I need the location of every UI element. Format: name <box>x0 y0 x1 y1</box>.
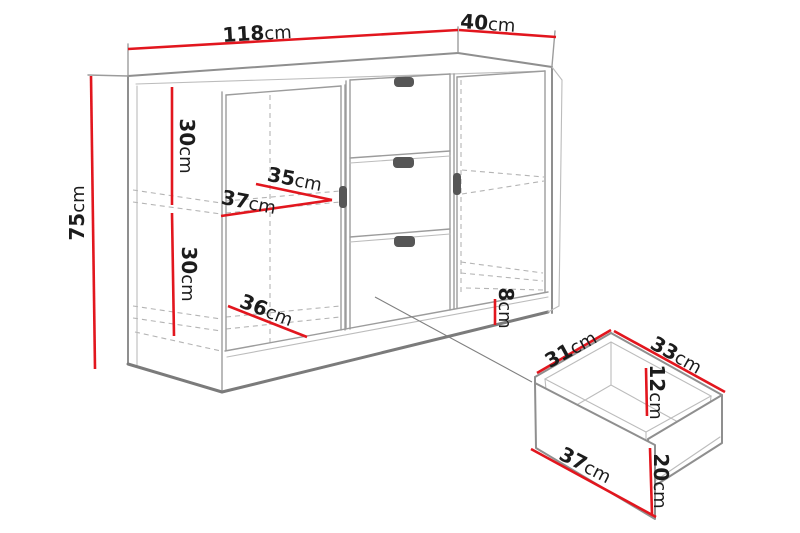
dim-value: 30 <box>175 118 199 146</box>
dim-value: 12 <box>645 364 669 392</box>
dim-unit: cm <box>649 481 670 508</box>
furniture-dimension-diagram: 118cm 40cm 75cm 30cm 30cm 35cm 37cm 36cm… <box>0 0 800 533</box>
dim-unit: cm <box>177 274 198 301</box>
cabinet-drawing <box>88 27 562 392</box>
left-door-handle <box>339 186 347 208</box>
dim-value: 30 <box>177 246 201 274</box>
dim-unit: cm <box>68 185 89 212</box>
dim-value: 75 <box>65 213 89 241</box>
diagram-canvas: 118cm 40cm 75cm 30cm 30cm 35cm 37cm 36cm… <box>0 0 800 533</box>
drawer-handle-2 <box>393 157 414 168</box>
dim-unit: cm <box>487 14 516 37</box>
dim-unit: cm <box>175 146 196 173</box>
dim-unit: cm <box>494 301 515 328</box>
dim-drawer-front-height-label: 20cm <box>649 453 673 508</box>
dim-value: 37 <box>219 185 251 214</box>
dim-cabinet-width-label: 118cm <box>222 19 292 47</box>
dim-drawer-inner-height-label: 12cm <box>645 364 669 419</box>
dim-drawer-side-label: 31cm <box>540 325 600 373</box>
dim-value: 8 <box>494 287 518 301</box>
cabinet-outline <box>88 27 562 392</box>
dim-unit: cm <box>264 22 293 45</box>
right-door-handle <box>453 173 461 195</box>
dim-unit: cm <box>263 302 296 331</box>
drawer-front-panel <box>535 383 655 519</box>
dim-value: 40 <box>460 9 489 35</box>
dim-top-section-label: 30cm <box>175 118 199 173</box>
dim-unit: cm <box>645 392 666 419</box>
dim-cabinet-depth-label: 40cm <box>460 9 517 37</box>
dim-door-width-label: 35cm <box>265 162 324 196</box>
dim-value: 20 <box>649 453 673 481</box>
dim-unit: cm <box>247 193 278 219</box>
dim-cabinet-height-label: 75cm <box>65 185 89 240</box>
dim-value: 118 <box>222 21 265 47</box>
dim-bottom-section-label: 30cm <box>177 246 201 301</box>
dim-plinth-height-label: 8cm <box>494 287 518 328</box>
drawer-handle-1 <box>394 77 414 87</box>
cabinet-dimension-lines <box>91 30 556 369</box>
drawer-handle-3 <box>394 236 415 247</box>
